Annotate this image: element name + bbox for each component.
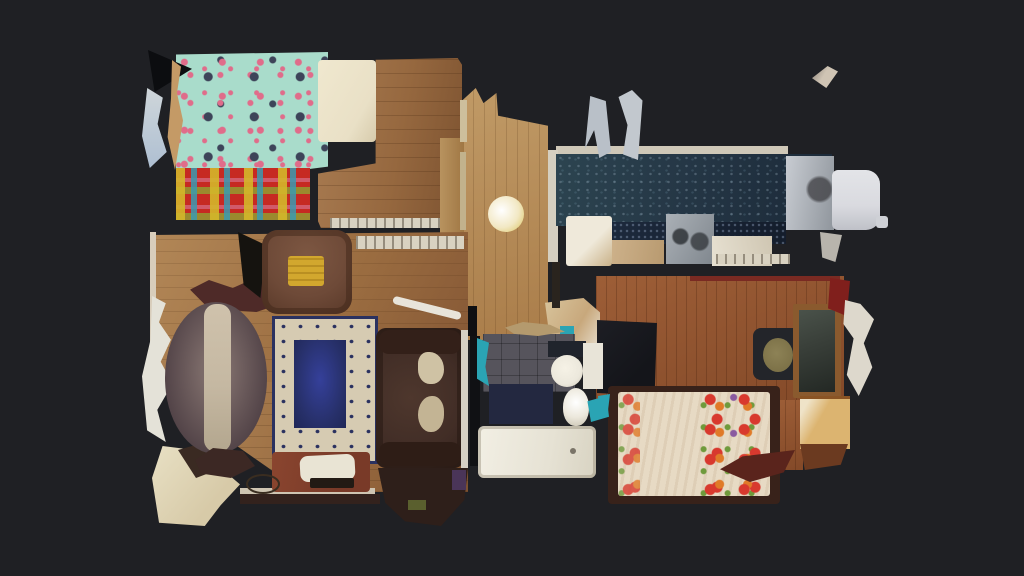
floating-mesh-shard [812,66,838,88]
sofa-pillow-1 [418,352,444,384]
bedroom2-duvet-floral-right [700,392,770,496]
bedroom2-wardrobe-dark [597,320,657,396]
bedroom2-dresser-mirror [799,310,835,392]
cable-loop [246,474,280,494]
bedroom2-top-red-line [690,276,840,281]
sofa-pillow-2 [418,396,444,432]
sofa-right-wall-sliver [461,330,468,468]
bedroom1-bed [176,52,328,174]
bathroom-tub-drain [570,448,576,454]
bedroom2-chair-seat [763,338,793,372]
sofa-arm-top [379,330,461,354]
bathroom-bathtub [478,426,596,478]
bedroom1-curtain-fragment-white [142,88,168,168]
below-sofa-green-bit [408,500,426,510]
kitchen-tan-counter [612,240,664,264]
dining-table-runner [204,304,231,452]
bathroom-toilet-bowl [551,355,583,387]
recliner-towel-yellow [288,256,324,286]
hallway-light-fixture [488,196,524,232]
dollhouse-viewport[interactable] [0,0,1024,576]
hallway-threshold-left [460,100,467,142]
bathroom-mat-navy [489,384,553,424]
kitchen-dishwasher [666,214,714,264]
below-sofa-purple-bit [452,470,466,490]
bedroom2-right-fragments [840,300,874,396]
bedroom2-nightstand [800,396,850,449]
kitchen-top-edge [556,146,788,154]
bedroom1-plaid-blanket [176,168,310,220]
bedroom2-dark-pole [552,262,560,308]
livingroom-window-sill [356,236,464,249]
bedroom1-pillow [318,60,376,142]
kitchen-washing-machine [832,170,880,230]
bathroom-sink [563,388,589,426]
livingroom-bottom-wall-shadow [240,494,380,504]
hallway-threshold-left2 [460,152,466,230]
tv-stand-device [310,478,354,488]
sofa-arm-bottom [379,442,461,466]
kitchen-stove-stainless [786,156,834,230]
bedroom2-nightstand-shadow [800,444,848,470]
bedroom2-duvet-floral-left [618,392,640,496]
kitchen-right-sliver [820,232,842,262]
bathroom-cabinet [583,343,603,389]
area-rug-center [294,340,346,428]
kitchen-washer-tab [876,216,888,228]
kitchen-lower-sill [716,254,790,264]
kitchen-white-cabinet [566,216,612,266]
